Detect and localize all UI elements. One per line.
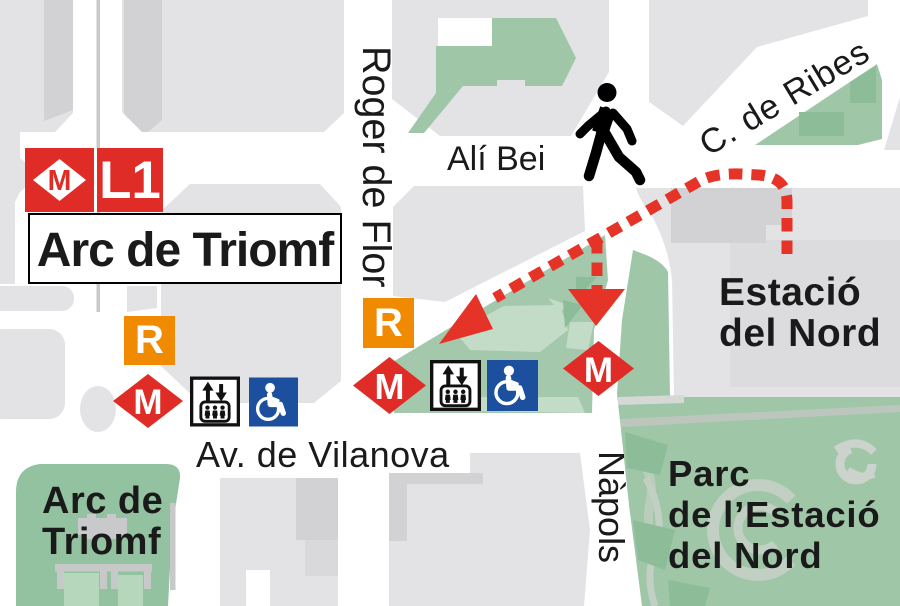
svg-text:M: M <box>133 383 162 422</box>
svg-text:M: M <box>584 351 613 390</box>
svg-text:M: M <box>48 165 72 197</box>
svg-text:M: M <box>375 366 405 407</box>
